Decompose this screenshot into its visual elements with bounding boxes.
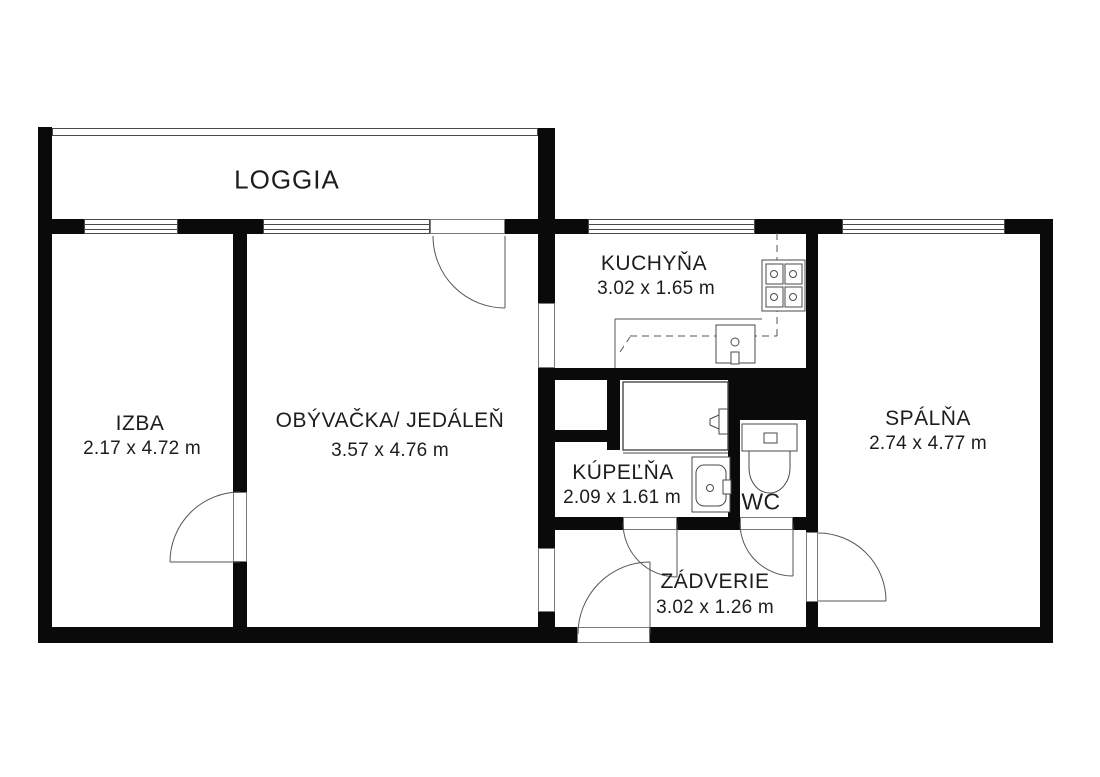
wall-mid-bedroom-upper: [806, 219, 818, 532]
room-label-bathroom: KÚPEĽŇA: [572, 461, 674, 485]
room-label-wc: WC: [741, 489, 780, 516]
window-kitchen: [588, 219, 755, 234]
room-dims-bedroom: 2.74 x 4.77 m: [869, 433, 987, 455]
room-label-living: OBÝVAČKA/ JEDÁLEŇ: [276, 409, 505, 433]
room-dims-izba: 2.17 x 4.72 m: [83, 438, 201, 460]
room-dims-bathroom: 2.09 x 1.61 m: [563, 487, 681, 509]
wall-facade-seg4: [755, 219, 842, 234]
entrance-door-swing: [578, 562, 650, 634]
wall-living-bath-upper: [538, 368, 555, 548]
bathtub-tap-icon: [710, 415, 719, 429]
wall-outer-left: [38, 127, 52, 643]
floorplan-canvas: LOGGIA IZBA 2.17 x 4.72 m OBÝVAČKA/ JEDÁ…: [0, 0, 1100, 777]
toilet-icon: [742, 424, 797, 493]
window-mullion: [85, 224, 177, 230]
window-mullion: [264, 224, 429, 230]
wall-mid-bedroom-lower: [806, 602, 818, 643]
opening-wc-door: [740, 517, 793, 530]
wall-living-kitchen: [538, 234, 555, 303]
opening-bedroom-door: [806, 532, 818, 602]
room-dims-hall: 3.02 x 1.26 m: [656, 597, 774, 619]
opening-kitchen-pass: [538, 303, 555, 368]
bedroom-door-swing: [818, 533, 886, 601]
opening-bath-door: [623, 517, 677, 530]
kitchen-sink-icon: [716, 325, 755, 364]
wall-living-bath-lower: [538, 612, 555, 643]
room-dims-living: 3.57 x 4.76 m: [331, 440, 449, 462]
room-dims-kitchen: 3.02 x 1.65 m: [597, 278, 715, 300]
wall-bath-hall-seg3: [793, 517, 818, 530]
window-mullion: [843, 224, 1004, 230]
window-mullion: [589, 224, 754, 230]
wall-facade-seg5: [1005, 219, 1053, 234]
bathtub-icon: [623, 382, 728, 453]
washbasin-icon: [692, 457, 731, 512]
wall-facade-seg2: [178, 219, 263, 234]
wall-bath-hall-seg2: [677, 517, 740, 530]
room-label-bedroom: SPÁLŇA: [885, 407, 971, 431]
wall-shaft-bottom: [555, 430, 607, 442]
stove-icon: [762, 260, 805, 311]
room-label-loggia: LOGGIA: [234, 165, 340, 196]
window-living: [263, 219, 430, 234]
bath-door-swing: [623, 523, 677, 577]
loggia-door-swing: [433, 236, 505, 308]
wall-outer-right: [1040, 219, 1053, 643]
opening-izba-door: [233, 492, 247, 562]
wall-shaft-right: [607, 380, 620, 450]
wall-bath-wc: [728, 380, 740, 517]
opening-entrance-door: [577, 627, 650, 643]
izba-door-swing: [170, 492, 240, 562]
room-label-kitchen: KUCHYŇA: [601, 252, 707, 276]
window-bedroom: [842, 219, 1005, 234]
wall-facade-seg1: [38, 219, 84, 234]
wall-loggia-right: [538, 128, 555, 234]
opening-hall-living: [538, 548, 555, 612]
room-label-hall: ZÁDVERIE: [660, 570, 769, 594]
loggia-open-edge: [52, 128, 538, 136]
opening-loggia-door: [430, 219, 505, 234]
wall-izba-living-lower: [233, 562, 247, 642]
wc-door-swing: [740, 523, 793, 576]
room-label-izba: IZBA: [116, 412, 165, 436]
wall-bath-hall-seg1: [555, 517, 623, 530]
wall-izba-living-upper: [233, 234, 247, 492]
window-izba: [84, 219, 178, 234]
